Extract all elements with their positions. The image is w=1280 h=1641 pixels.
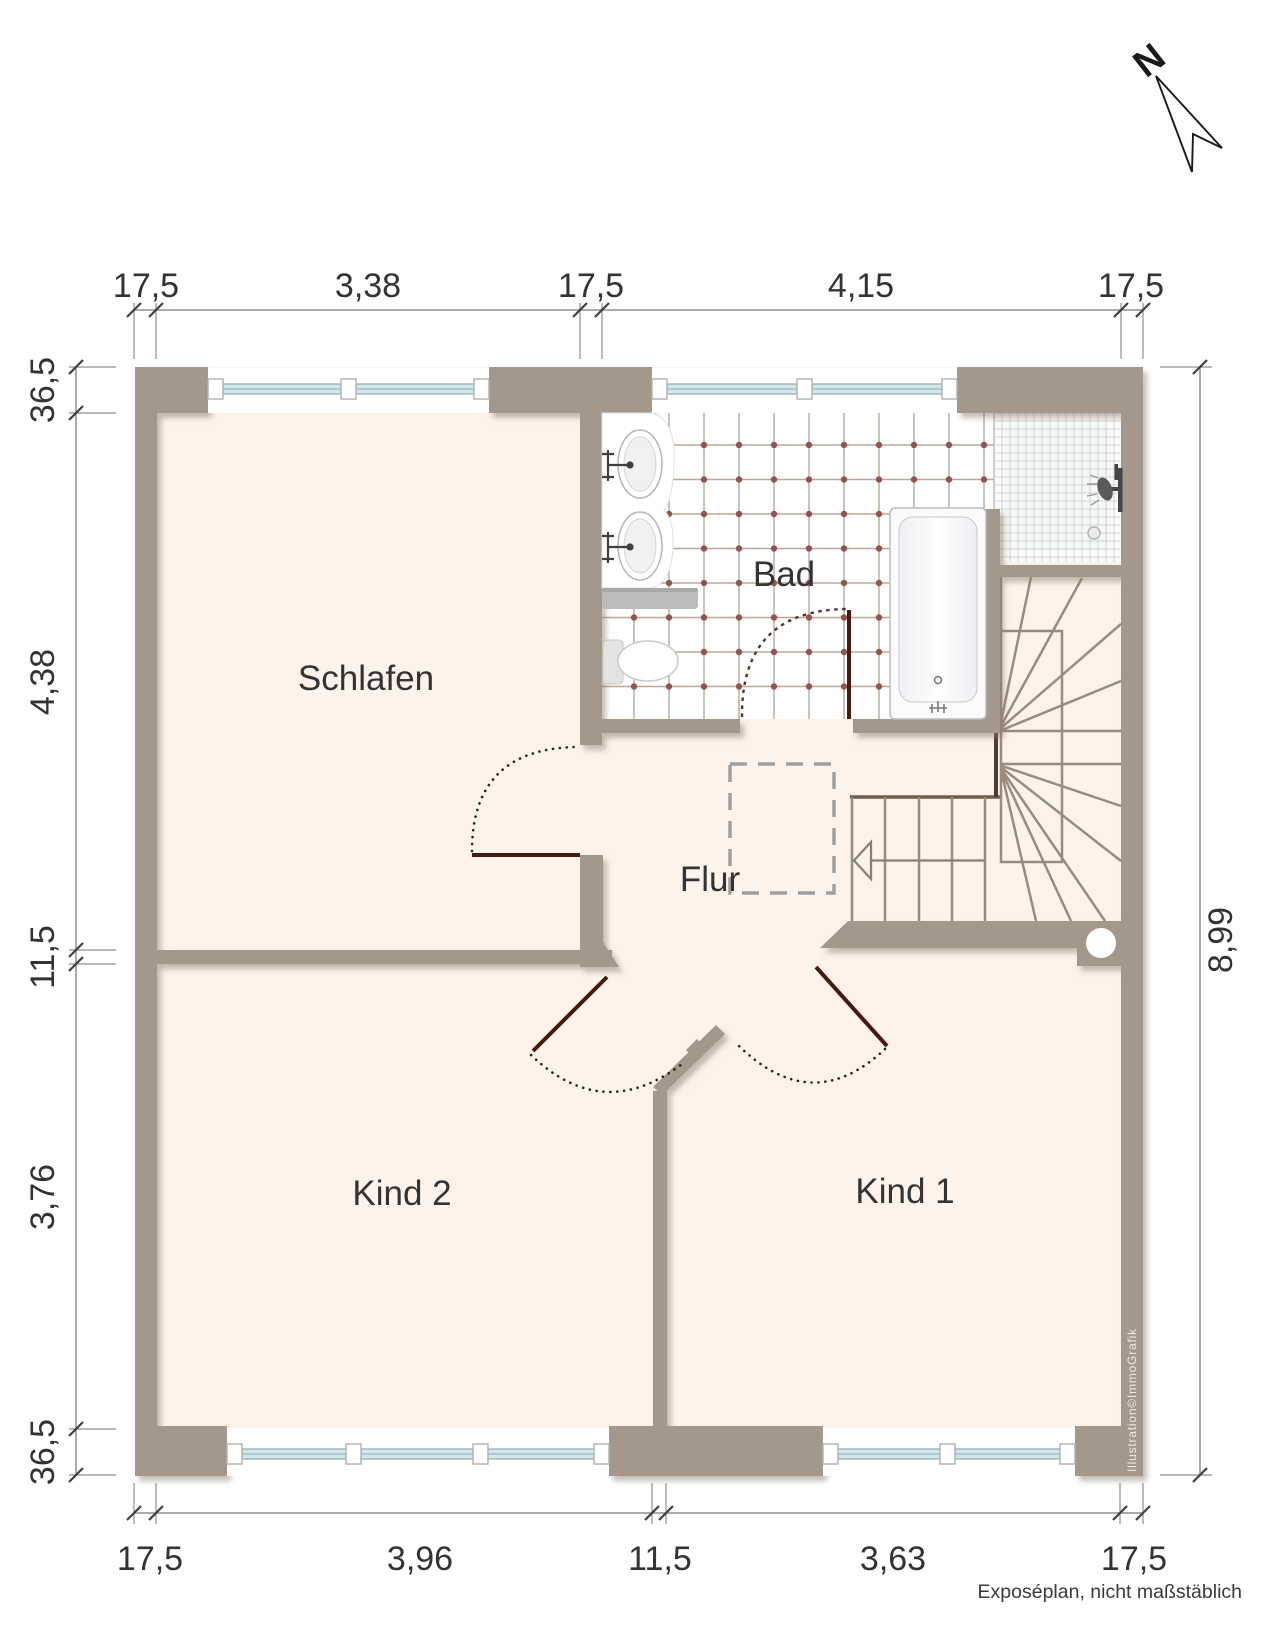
- svg-text:8,99: 8,99: [1202, 907, 1240, 973]
- svg-text:3,96: 3,96: [387, 1540, 453, 1578]
- svg-text:4,38: 4,38: [24, 649, 62, 715]
- svg-text:Flur: Flur: [680, 860, 741, 899]
- svg-text:Illustration©ImmoGrafik: Illustration©ImmoGrafik: [1125, 1328, 1139, 1472]
- svg-text:3,63: 3,63: [860, 1540, 926, 1578]
- svg-text:Bad: Bad: [753, 555, 815, 594]
- svg-text:Schlafen: Schlafen: [298, 659, 434, 698]
- svg-text:17,5: 17,5: [1101, 1540, 1167, 1578]
- svg-text:11,5: 11,5: [628, 1540, 692, 1578]
- svg-text:17,5: 17,5: [117, 1540, 183, 1578]
- svg-text:17,5: 17,5: [113, 267, 179, 305]
- svg-text:Kind 2: Kind 2: [352, 1174, 451, 1213]
- svg-text:3,76: 3,76: [24, 1164, 62, 1230]
- svg-text:17,5: 17,5: [1098, 267, 1164, 305]
- svg-text:3,38: 3,38: [335, 267, 401, 305]
- svg-text:11,5: 11,5: [24, 925, 62, 989]
- svg-text:36,5: 36,5: [24, 357, 62, 423]
- svg-text:4,15: 4,15: [828, 267, 894, 305]
- svg-text:Kind 1: Kind 1: [855, 1172, 954, 1211]
- svg-text:Exposéplan, nicht maßstäblich: Exposéplan, nicht maßstäblich: [978, 1581, 1242, 1603]
- svg-text:36,5: 36,5: [24, 1419, 62, 1485]
- svg-text:17,5: 17,5: [558, 267, 624, 305]
